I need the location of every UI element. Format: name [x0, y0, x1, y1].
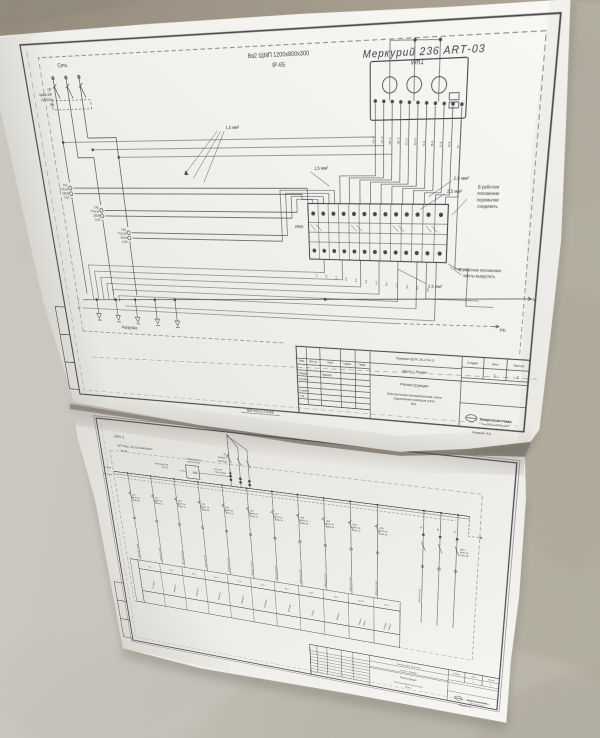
svg-text:N-2: N-2 [447, 141, 452, 147]
svg-text:IP-65: IP-65 [272, 62, 285, 70]
svg-text:2,5 мм²: 2,5 мм² [428, 283, 443, 289]
svg-text:Лист: Лист [492, 362, 500, 366]
svg-text:ВВГнг(А)-LS 3х2,5: ВВГнг(А)-LS 3х2,5 [375, 580, 378, 596]
svg-text:1,5 мм²: 1,5 мм² [225, 124, 239, 130]
svg-text:А: А [420, 526, 422, 530]
svg-text:ВА88-35Р: ВА88-35Р [39, 93, 53, 98]
svg-text:1,5 мм²: 1,5 мм² [314, 165, 329, 171]
svg-text:Утв.: Утв. [300, 394, 305, 398]
svg-text:Подп.: Подп. [358, 363, 366, 367]
svg-text:ВВГнг(А)-LS 5х6: ВВГнг(А)-LS 5х6 [418, 588, 421, 602]
svg-text:250/200А: 250/200А [41, 98, 54, 103]
svg-text:С: С [454, 530, 456, 534]
svg-text:В рабочем: В рабочем [478, 184, 500, 190]
svg-text:В: В [437, 528, 439, 532]
svg-text:Стадия: Стадия [467, 361, 478, 365]
svg-text:Иванов: Иванов [322, 373, 332, 377]
svg-text:Wh1: Wh1 [411, 59, 424, 67]
svg-text:С1-1: С1-1 [404, 138, 408, 146]
svg-text:N: N [532, 297, 536, 302]
svg-text:2,5 мм²: 2,5 мм² [447, 188, 463, 194]
svg-text:Вв1: Вв1 [411, 402, 417, 406]
svg-text:№док.: №док. [343, 362, 351, 366]
svg-text:положении: положении [477, 190, 499, 196]
svg-text:соединить: соединить [477, 203, 498, 209]
svg-text:А1-1: А1-1 [371, 136, 375, 143]
svg-text:Разраб.: Разраб. [299, 371, 309, 375]
svg-text:N-2: N-2 [416, 285, 419, 290]
svg-text:А1-2: А1-2 [379, 136, 383, 143]
svg-text:Wh: Wh [193, 471, 198, 475]
svg-text:С-1: С-1 [396, 283, 399, 288]
svg-text:Нагрузка: Нагрузка [122, 325, 138, 331]
svg-text:Листов: Листов [513, 364, 524, 369]
svg-text:В-2: В-2 [430, 140, 435, 146]
svg-text:С-2: С-2 [438, 141, 443, 147]
svg-text:Провер.: Провер. [299, 377, 309, 381]
svg-text:N-1: N-1 [406, 284, 409, 289]
svg-text:N: N [456, 145, 461, 147]
svg-text:А-2: А-2 [421, 140, 425, 146]
svg-text:PE: PE [500, 328, 506, 333]
svg-text:Сеть: Сеть [57, 63, 68, 70]
svg-text:QF: QF [47, 87, 52, 91]
svg-text:Изм: Изм [299, 359, 304, 363]
svg-text:В1-1: В1-1 [388, 137, 392, 145]
svg-text:винты выкрутить: винты выкрутить [463, 273, 495, 279]
svg-text:ИКМ: ИКМ [295, 224, 303, 229]
svg-text:2,5 мм²: 2,5 мм² [453, 175, 469, 181]
svg-text:Лист: Лист [327, 361, 334, 365]
svg-text:С1-2: С1-2 [413, 137, 417, 145]
svg-text:ВВГнг(А)-LS 3х2,5: ВВГнг(А)-LS 3х2,5 [349, 576, 352, 592]
svg-text:Кол.уч: Кол.уч [309, 360, 318, 364]
svg-text:перемычки: перемычки [477, 197, 499, 203]
svg-text:В1-2: В1-2 [396, 137, 400, 145]
